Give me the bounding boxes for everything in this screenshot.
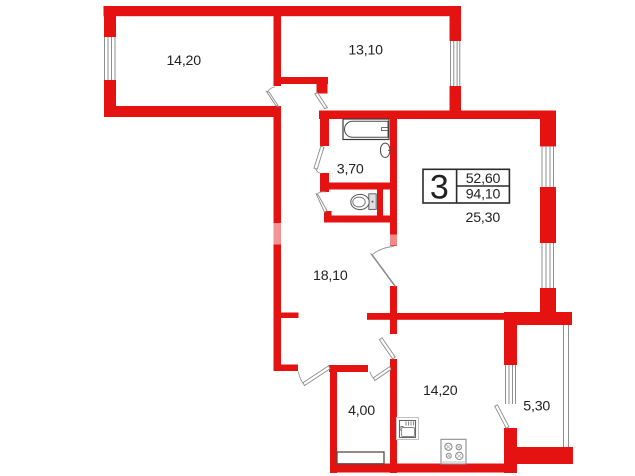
svg-text:5,30: 5,30	[523, 398, 550, 414]
svg-text:14,20: 14,20	[166, 53, 201, 69]
svg-text:13,10: 13,10	[348, 43, 383, 59]
svg-text:14,20: 14,20	[423, 383, 458, 399]
svg-text:52,60: 52,60	[466, 171, 501, 187]
svg-text:25,30: 25,30	[466, 210, 501, 226]
svg-text:18,10: 18,10	[313, 268, 348, 284]
svg-text:94,10: 94,10	[466, 187, 501, 203]
svg-text:3,70: 3,70	[337, 161, 364, 177]
svg-text:3: 3	[430, 169, 449, 207]
svg-text:4,00: 4,00	[348, 403, 375, 419]
